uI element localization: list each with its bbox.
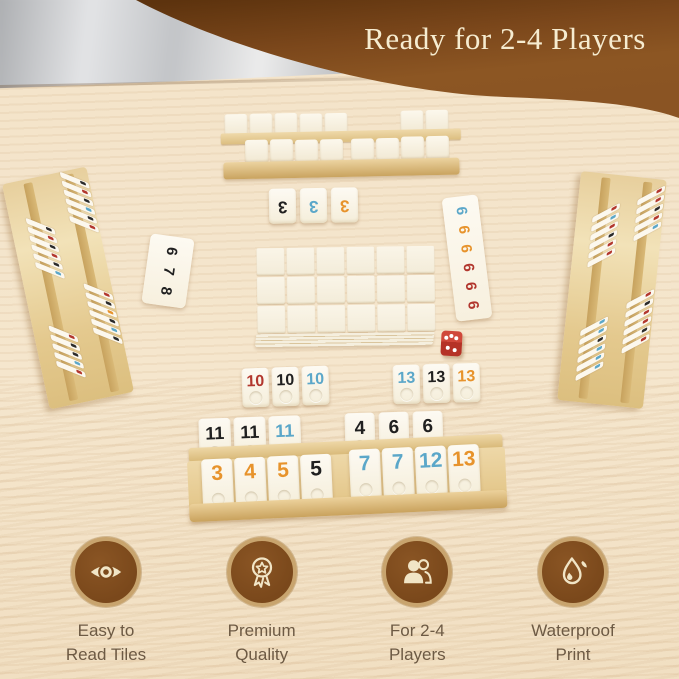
facedown-tile	[317, 305, 345, 332]
tile: 3	[300, 188, 328, 223]
facedown-tile	[377, 304, 405, 331]
product-photo-scene: 3 3 3 6 7 8 6 6 6 6 6 6 10 10 10	[0, 0, 679, 679]
players-icon	[382, 537, 452, 607]
tile-set-10s: 10 10 10	[241, 365, 332, 407]
award-icon	[227, 537, 297, 607]
facedown-tile	[257, 277, 285, 304]
feature-label: PremiumQuality	[228, 619, 296, 667]
tile-pool	[256, 246, 443, 349]
tile: 10	[241, 368, 269, 408]
die-pip	[444, 336, 448, 340]
die-pip	[453, 348, 457, 352]
tile-back	[320, 139, 343, 162]
tile: 7	[349, 448, 382, 499]
facedown-tile	[257, 306, 285, 333]
edge-on-tiles	[634, 191, 665, 238]
feature-players: For 2-4Players	[347, 537, 487, 667]
tile: 3	[331, 187, 359, 222]
facedown-tile	[347, 276, 375, 303]
tile-back	[295, 139, 318, 162]
facedown-tile	[406, 246, 434, 273]
eye-icon	[71, 537, 141, 607]
banner-title: Ready for 2-4 Players	[340, 21, 670, 57]
rack-front-bar	[223, 158, 459, 180]
facedown-tile	[286, 247, 314, 274]
facedown-tile	[407, 275, 435, 302]
facedown-tile	[317, 276, 345, 303]
tile: 13	[448, 444, 481, 495]
tile-back	[351, 138, 374, 161]
tile-back	[245, 140, 268, 163]
tile-stack-edges	[255, 332, 435, 348]
die-pip	[454, 336, 458, 340]
feature-label: For 2-4Players	[389, 619, 446, 667]
red-die	[440, 330, 462, 356]
tile: 3	[269, 188, 297, 223]
facedown-tile	[376, 246, 404, 273]
feature-easy-to-read: Easy toRead Tiles	[36, 537, 176, 667]
tile: 13	[452, 363, 480, 403]
player-rack-bottom: 3 4 5 5 7 7 12 13	[186, 434, 507, 524]
facedown-tile	[346, 247, 374, 274]
tile: 13	[422, 364, 450, 404]
facedown-tile	[377, 275, 405, 302]
facedown-tile-grid	[256, 246, 443, 334]
die-pip	[446, 346, 450, 350]
facedown-tile	[256, 248, 284, 275]
facedown-tile	[316, 247, 344, 274]
tile: 12	[415, 445, 448, 496]
tile: 13	[393, 364, 421, 404]
tile-back	[376, 138, 399, 161]
droplet-icon	[538, 537, 608, 607]
tile: 10	[301, 366, 329, 406]
tile-set-333: 3 3 3	[269, 187, 363, 224]
die-pip	[449, 334, 453, 338]
tile: 7	[382, 447, 415, 498]
facedown-tile	[407, 304, 435, 331]
facedown-tile	[347, 305, 375, 332]
feature-waterproof: WaterproofPrint	[503, 537, 643, 667]
feature-premium-quality: PremiumQuality	[192, 537, 332, 667]
feature-row: Easy toRead Tiles PremiumQuality	[36, 537, 643, 667]
tile-set-13s: 13 13 13	[393, 363, 484, 404]
feature-label: Easy toRead Tiles	[66, 619, 146, 667]
tile: 10	[271, 367, 299, 407]
facedown-tile	[287, 276, 315, 303]
tile-back	[270, 139, 293, 162]
facedown-tile	[287, 305, 315, 332]
feature-label: WaterproofPrint	[531, 619, 614, 667]
